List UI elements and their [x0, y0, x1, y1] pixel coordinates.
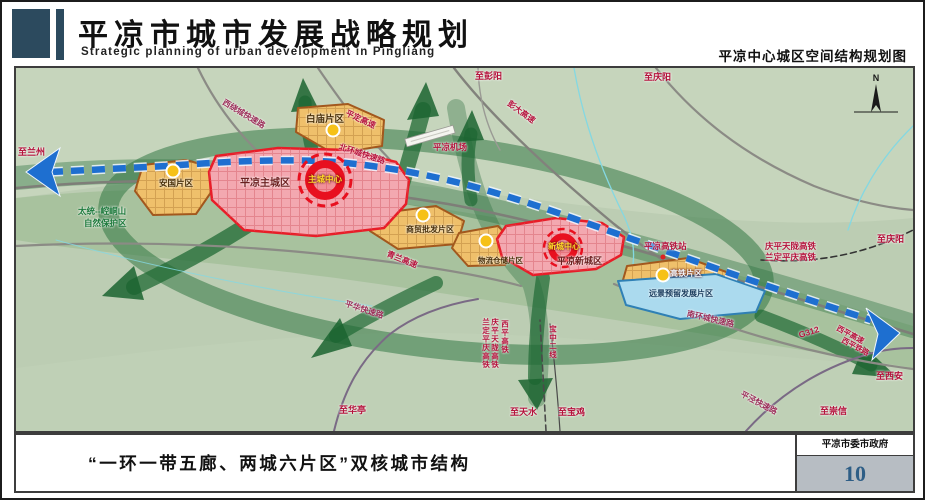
page-number: 10: [797, 456, 913, 491]
planning-map: N 至兰州西绕城快速路平定高速北环城快速路至彭阳彭大高速至庆阳白庙片区平凉机场安…: [14, 66, 915, 433]
agency-page-box: 平凉市委市政府 10: [795, 435, 913, 491]
map-graphics: N: [16, 68, 913, 431]
header-decor-bar: [56, 9, 64, 60]
structure-caption: “一环一带五廊、两城六片区”双核城市结构: [88, 451, 471, 476]
main-city-center-symbol: [299, 154, 351, 206]
hsr-station-marker: [661, 255, 666, 260]
agency-name: 平凉市委市政府: [797, 435, 913, 456]
compass-n-label: N: [873, 73, 880, 83]
page-subtitle-en: Strategic planning of urban development …: [81, 46, 435, 58]
planning-document-page: 平凉市城市发展战略规划 Strategic planning of urban …: [0, 0, 925, 500]
header-decor-block: [12, 9, 50, 58]
footer: “一环一带五廊、两城六片区”双核城市结构 平凉市委市政府 10: [14, 433, 915, 493]
map-figure-title: 平凉中心城区空间结构规划图: [719, 45, 908, 65]
